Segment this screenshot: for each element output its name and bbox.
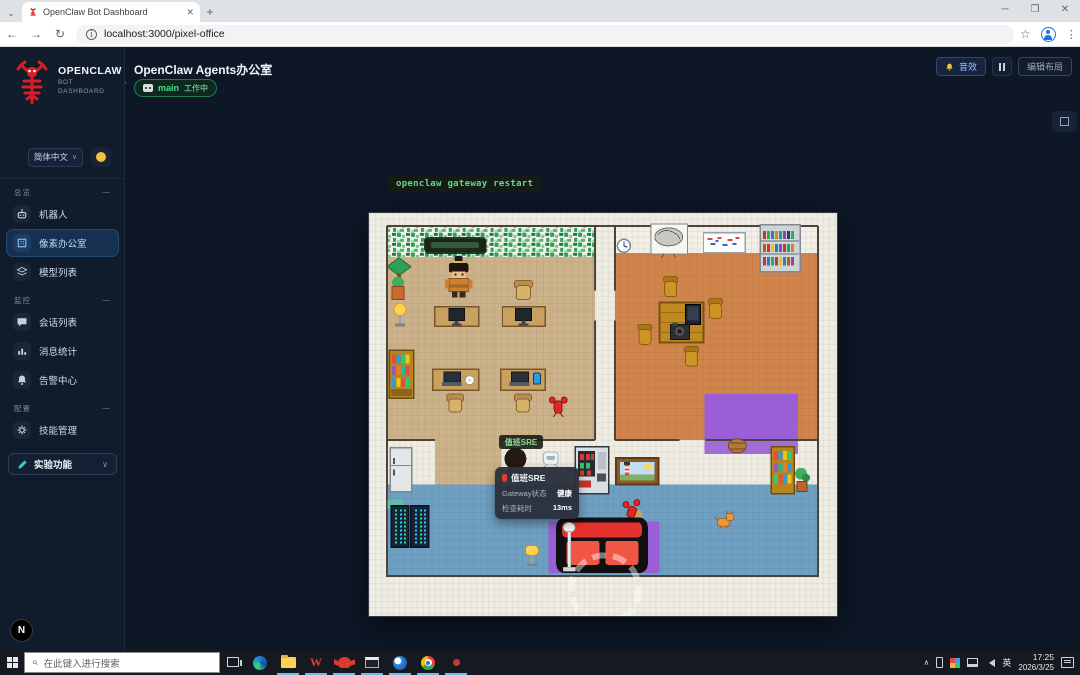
wall-clock <box>617 239 630 252</box>
browser-toolbar: ← → ↻ i localhost:3000/pixel-office ☆ ⋮ <box>0 22 1080 47</box>
sun-icon <box>96 152 106 162</box>
sound-label: 音效 <box>959 60 977 73</box>
bookshelf-left <box>389 350 414 398</box>
chat-bubble-icon <box>13 313 31 331</box>
network-icon[interactable] <box>967 658 978 667</box>
server-racks <box>387 500 429 548</box>
pixel-office-canvas[interactable] <box>368 212 838 617</box>
page-title: OpenClaw Agents办公室 <box>134 61 272 78</box>
sidebar-item-models[interactable]: 模型列表 <box>7 259 118 285</box>
fullscreen-button[interactable] <box>1052 111 1077 132</box>
pencil-icon <box>17 459 28 470</box>
section-overview: 总览— <box>0 187 125 198</box>
command-bubble: openclaw gateway restart <box>388 176 541 192</box>
blue-app-icon <box>393 656 407 670</box>
system-tray: ∧ 英 17:25 2026/3/25 <box>924 650 1080 675</box>
chair <box>685 346 699 366</box>
brand-block: OPENCLAW BOT DASHBOARD « <box>14 55 122 107</box>
robot-face-icon <box>143 84 153 92</box>
wps-icon: W <box>310 655 322 670</box>
chair <box>638 324 652 344</box>
sidebar-item-skills[interactable]: 技能管理 <box>7 417 118 443</box>
speaker-icon[interactable] <box>985 659 995 667</box>
sidebar-item-robots[interactable]: 机器人 <box>7 201 118 227</box>
sidebar: OPENCLAW BOT DASHBOARD « 简体中文 ∨ 总览— <box>0 47 125 650</box>
tab-close-icon[interactable]: ✕ <box>186 7 194 18</box>
divider <box>0 178 125 179</box>
sidebar-item-sessions[interactable]: 会话列表 <box>7 309 118 335</box>
url-text: localhost:3000/pixel-office <box>104 28 225 40</box>
bottle-shelf <box>760 225 800 272</box>
sidebar-item-label: 像素办公室 <box>39 236 87 250</box>
bell-icon <box>945 62 954 72</box>
brand-sub1: BOT <box>58 79 122 86</box>
section-collapse-icon[interactable]: — <box>103 187 112 198</box>
tooltip-row-value: 13ms <box>553 503 572 514</box>
taskbar-app-chrome[interactable] <box>414 650 442 675</box>
sidebar-item-label: 机器人 <box>39 207 68 221</box>
terminal-icon <box>365 657 379 668</box>
edit-layout-label: 编辑布局 <box>1027 60 1063 73</box>
tooltip-row-label: Gateway状态 <box>502 488 547 499</box>
sidebar-item-label: 消息统计 <box>39 344 77 358</box>
sidebar-item-alerts[interactable]: 告警中心 <box>7 367 118 393</box>
experimental-features-button[interactable]: 实验功能 ∨ <box>8 453 117 475</box>
sidebar-item-pixel-office[interactable]: 像素办公室 <box>7 230 118 256</box>
taskbar-app-blue[interactable] <box>386 650 414 675</box>
taskbar-clock[interactable]: 17:25 2026/3/25 <box>1018 653 1054 672</box>
new-tab-button[interactable]: + <box>200 2 220 22</box>
sound-button[interactable]: 音效 <box>936 57 986 76</box>
pause-icon <box>999 63 1005 71</box>
windows-logo-icon <box>7 657 18 668</box>
edit-layout-button[interactable]: 编辑布局 <box>1018 57 1072 76</box>
input-language-indicator[interactable]: 英 <box>1002 656 1011 669</box>
desk-laptop-2 <box>501 369 546 390</box>
task-view-icon <box>227 657 239 667</box>
tooltip-title: 值班SRE <box>511 472 545 484</box>
back-button[interactable]: ← <box>0 27 24 41</box>
search-placeholder: 在此键入进行搜索 <box>44 656 120 670</box>
start-button[interactable] <box>0 650 24 675</box>
fridge <box>390 448 412 492</box>
chair <box>708 299 722 319</box>
clock-time: 17:25 <box>1018 653 1054 663</box>
bell-icon <box>13 371 31 389</box>
desk-laptop-1 <box>433 369 479 390</box>
reload-button[interactable]: ↻ <box>48 27 72 41</box>
theme-toggle-button[interactable] <box>91 147 111 167</box>
maximize-button[interactable]: ❐ <box>1020 0 1050 20</box>
barrel-stool <box>728 439 746 453</box>
wall-painting-sketch <box>651 224 688 258</box>
agent-status: 工作中 <box>184 83 208 94</box>
sidebar-item-label: 模型列表 <box>39 265 77 279</box>
section-collapse-icon[interactable]: — <box>103 295 112 306</box>
section-config: 配置— <box>0 403 125 414</box>
lobster-favicon <box>28 7 38 17</box>
clock-date: 2026/3/25 <box>1018 663 1054 672</box>
brand-name: OPENCLAW <box>58 65 122 77</box>
window-controls: ─ ❐ ✕ <box>990 0 1080 20</box>
chrome-icon <box>421 656 435 670</box>
vending-machine <box>575 447 609 494</box>
language-value: 简体中文 <box>34 151 68 163</box>
lounge-painting <box>616 458 659 485</box>
taskbar-app-edge[interactable] <box>246 650 274 675</box>
red-dot-icon <box>453 659 460 666</box>
tooltip-row-value: 健康 <box>557 488 572 499</box>
minimize-button[interactable]: ─ <box>990 0 1020 20</box>
desk-monitor-1 <box>435 307 479 327</box>
close-button[interactable]: ✕ <box>1050 0 1080 20</box>
desk-monitor-2 <box>502 307 545 327</box>
section-monitoring: 监控— <box>0 295 125 306</box>
agent-status-badge: main 工作中 <box>134 79 217 97</box>
bookshelf-right <box>771 447 794 494</box>
notification-center-icon[interactable] <box>1061 657 1074 668</box>
browser-tab[interactable]: OpenClaw Bot Dashboard ✕ <box>22 2 200 22</box>
sidebar-item-label: 告警中心 <box>39 373 77 387</box>
profile-avatar[interactable] <box>1041 27 1056 42</box>
section-collapse-icon[interactable]: — <box>103 403 112 414</box>
chair <box>514 281 532 300</box>
bookmark-star-icon[interactable]: ☆ <box>1020 27 1031 41</box>
whiteboard <box>704 233 746 253</box>
sidebar-item-label: 会话列表 <box>39 315 77 329</box>
address-bar[interactable]: i localhost:3000/pixel-office <box>76 25 1014 44</box>
meeting-table <box>660 303 704 343</box>
toolbar-right: ☆ ⋮ <box>1020 27 1077 42</box>
taskbar-app-dot[interactable] <box>442 650 470 675</box>
taskbar-app-terminal[interactable] <box>358 650 386 675</box>
taskbar-app-red[interactable] <box>330 650 358 675</box>
app-root: OPENCLAW BOT DASHBOARD « 简体中文 ∨ 总览— <box>0 47 1080 650</box>
agent-name-label <box>424 237 486 252</box>
tab-title: OpenClaw Bot Dashboard <box>43 7 181 17</box>
chair <box>447 394 464 412</box>
edge-icon <box>253 656 267 670</box>
windows-taskbar: ⌕ 在此键入进行搜索 W ∧ 英 17:25 2026/3/25 <box>0 650 1080 675</box>
red-app-icon <box>338 657 351 668</box>
tab-search-icon[interactable]: ⌄ <box>0 4 22 22</box>
taskbar-app-wps[interactable]: W <box>302 650 330 675</box>
sidebar-item-label: 技能管理 <box>39 423 77 437</box>
sre-name-label: 值班SRE <box>499 435 543 449</box>
nextjs-dev-badge[interactable]: N <box>10 619 33 642</box>
browser-tabstrip: ⌄ OpenClaw Bot Dashboard ✕ + ─ ❐ ✕ <box>0 0 1080 22</box>
office-map <box>369 213 837 616</box>
folder-icon <box>281 657 296 668</box>
task-view-button[interactable] <box>220 654 246 672</box>
thermometer-icon <box>502 474 507 482</box>
tooltip-row-label: 检查耗时 <box>502 503 532 514</box>
device-icon[interactable] <box>936 657 943 668</box>
browser-menu-icon[interactable]: ⋮ <box>1066 28 1077 41</box>
pause-button[interactable] <box>992 57 1012 76</box>
sre-tooltip: 值班SRE Gateway状态健康 检查耗时13ms <box>495 467 579 519</box>
taskbar-app-explorer[interactable] <box>274 650 302 675</box>
robot-icon <box>13 205 31 223</box>
chair <box>514 394 531 412</box>
chevron-down-icon: ∨ <box>102 460 108 469</box>
language-select[interactable]: 简体中文 ∨ <box>28 148 83 167</box>
office-building-icon <box>13 234 31 252</box>
screen: ⌄ OpenClaw Bot Dashboard ✕ + ─ ❐ ✕ ← → ↻… <box>0 0 1080 675</box>
brand-sub2: DASHBOARD <box>58 88 122 95</box>
search-icon: ⌕ <box>32 657 38 668</box>
gear-icon <box>13 421 31 439</box>
fullscreen-icon <box>1060 117 1069 126</box>
taskbar-search[interactable]: ⌕ 在此键入进行搜索 <box>24 652 220 673</box>
forward-button[interactable]: → <box>24 27 48 41</box>
agent-name: main <box>158 83 179 93</box>
bar-chart-icon <box>13 342 31 360</box>
site-info-icon[interactable]: i <box>86 29 97 40</box>
chair <box>664 277 678 297</box>
experimental-label: 实验功能 <box>34 457 96 471</box>
tray-color-app-icon[interactable] <box>950 658 960 668</box>
chevron-down-icon: ∨ <box>72 153 77 161</box>
sidebar-item-message-stats[interactable]: 消息统计 <box>7 338 118 364</box>
tray-expand-icon[interactable]: ∧ <box>924 658 930 667</box>
model-layers-icon <box>13 263 31 281</box>
lobster-logo <box>14 55 50 107</box>
